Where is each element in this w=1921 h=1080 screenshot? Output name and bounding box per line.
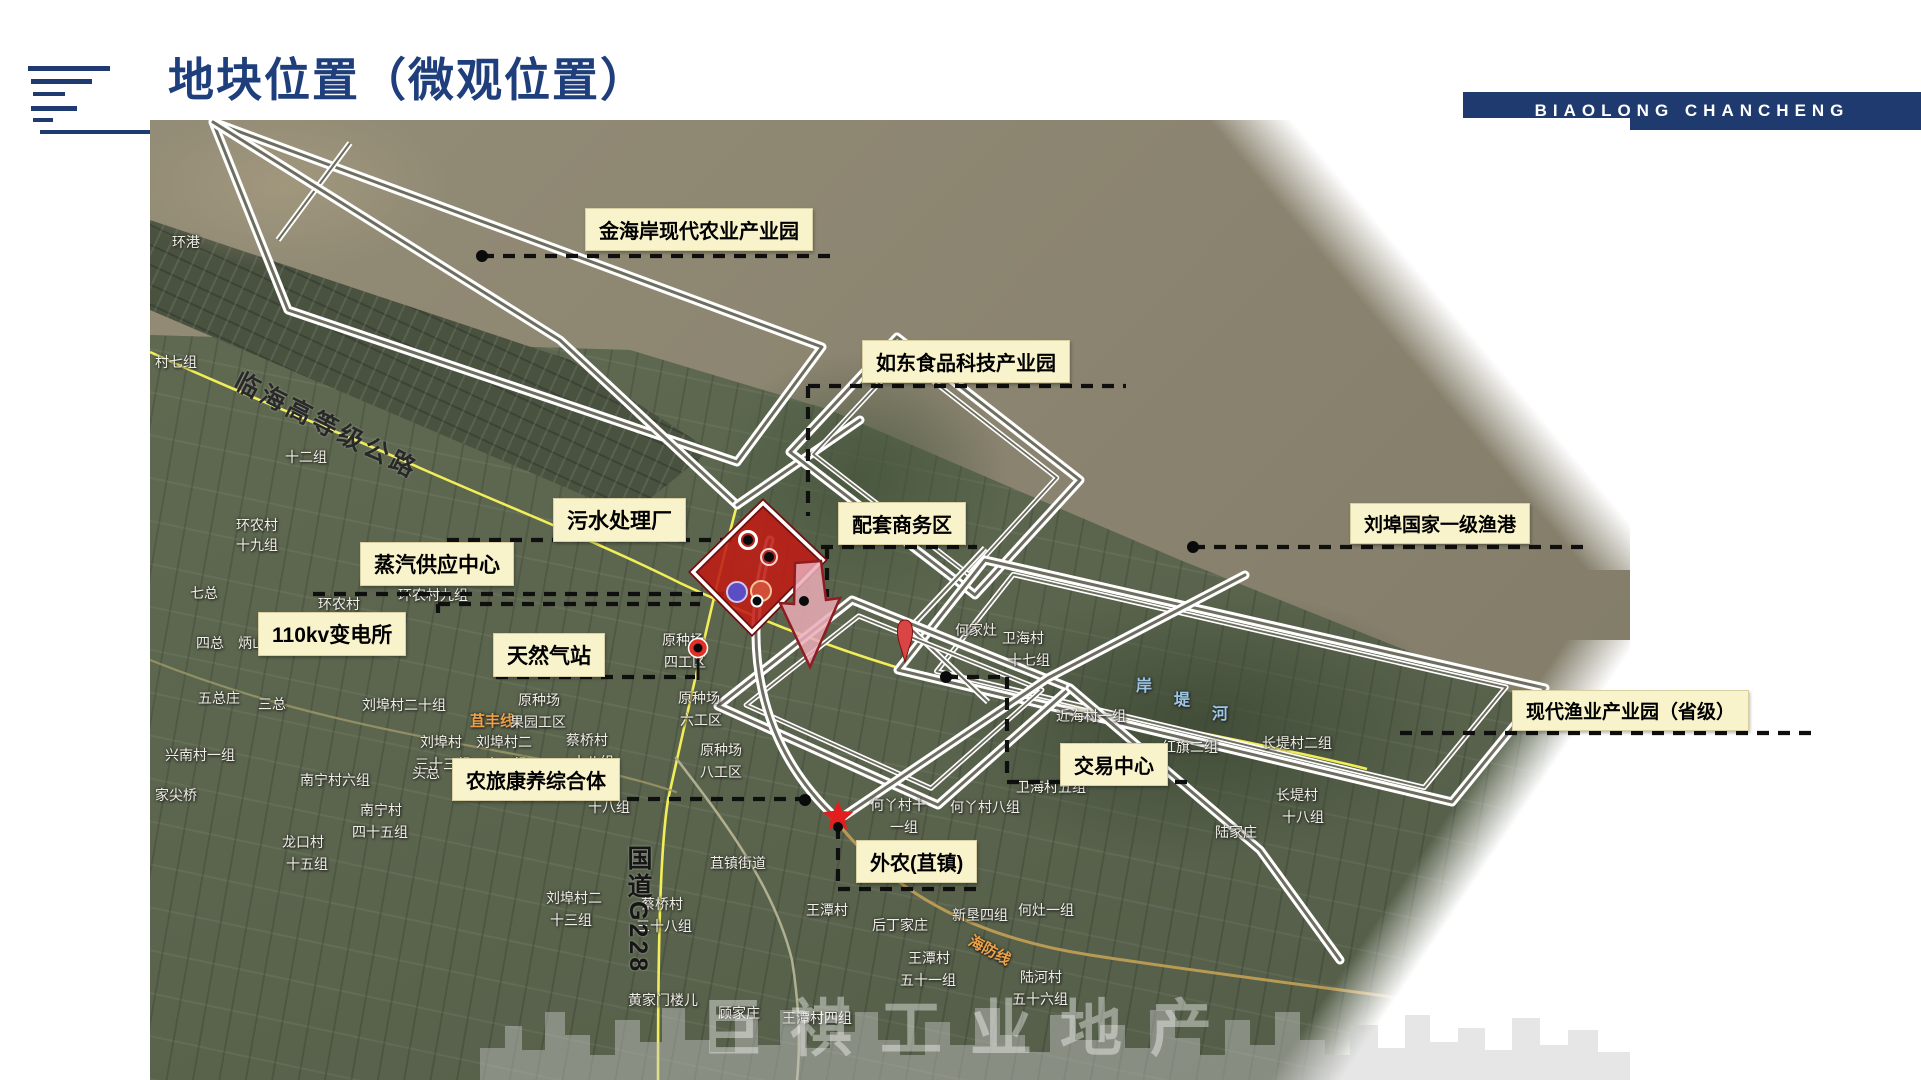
callout-wushui: 污水处理厂	[553, 498, 686, 542]
watermark-text: 巨祺工业地产	[700, 978, 1240, 1068]
callout-tianranqi: 天然气站	[493, 633, 605, 677]
callout-zhengqi: 蒸汽供应中心	[360, 542, 514, 586]
callout-peitao: 配套商务区	[838, 502, 966, 545]
callout-biandiansuo: 110kv变电所	[258, 612, 406, 656]
callout-wainong: 外农(苴镇)	[856, 840, 977, 883]
callout-rudong: 如东食品科技产业园	[862, 340, 1070, 383]
callout-jinhaian: 金海岸现代农业产业园	[585, 208, 813, 251]
slide: 地块位置（微观位置） BIAOLONG CHANCHENG	[0, 0, 1921, 1080]
callout-jiaoyi: 交易中心	[1060, 743, 1168, 786]
callout-xiandaiyuye: 现代渔业产业园（省级）	[1512, 690, 1749, 731]
callout-layer: 金海岸现代农业产业园如东食品科技产业园污水处理厂配套商务区蒸汽供应中心110kv…	[0, 0, 1921, 1080]
callout-liubu: 刘埠国家一级渔港	[1350, 503, 1530, 544]
callout-nonglv: 农旅康养综合体	[452, 758, 620, 801]
